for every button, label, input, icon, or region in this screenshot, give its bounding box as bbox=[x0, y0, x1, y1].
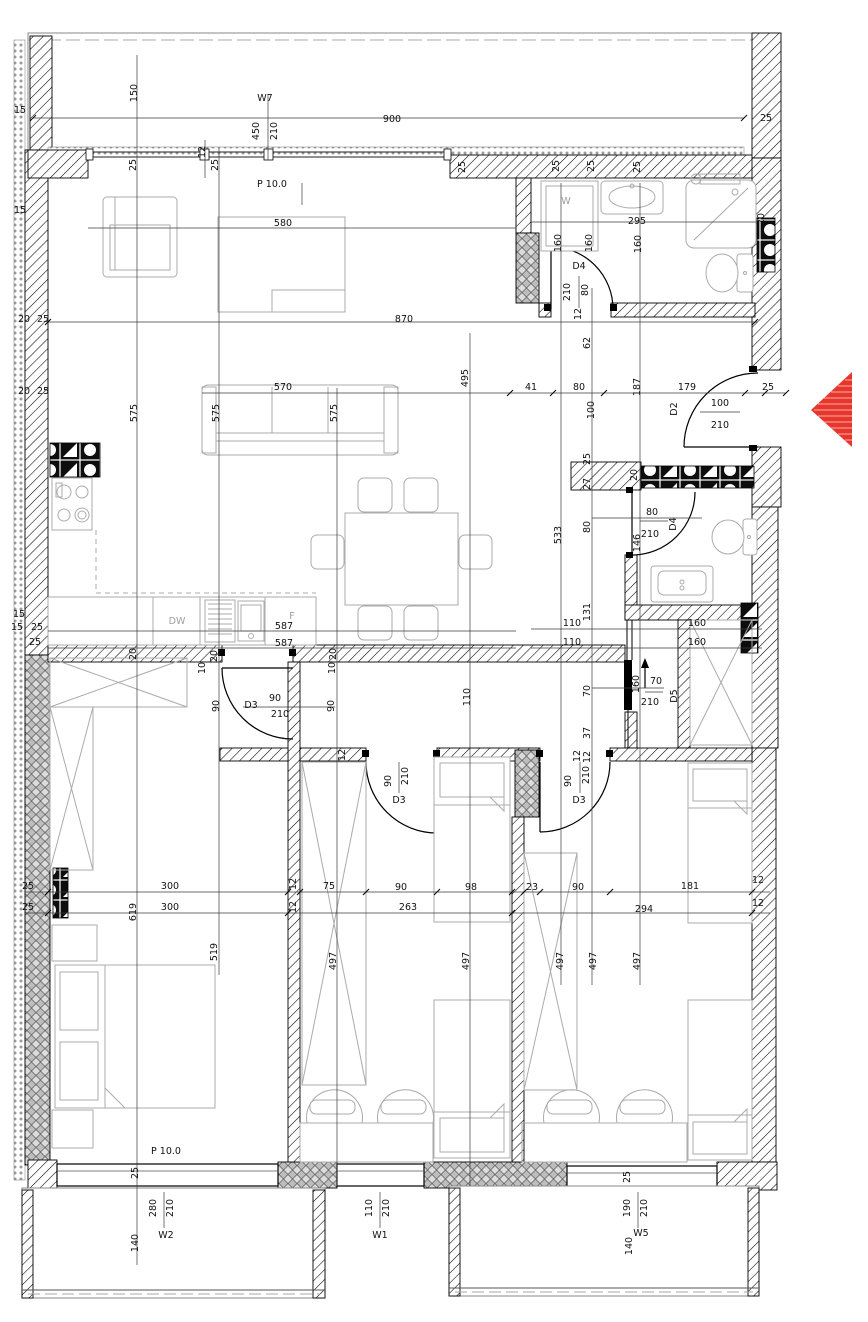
slide-arrow bbox=[641, 658, 649, 668]
desk-middle bbox=[300, 1123, 433, 1162]
door-d3-bedroom-middle bbox=[362, 750, 440, 833]
plan-label: 280 bbox=[148, 1199, 159, 1217]
plan-label: 12 bbox=[572, 750, 583, 762]
window-w2 bbox=[57, 1164, 278, 1186]
plan-label: 210 bbox=[641, 529, 659, 540]
plan-label: 70 bbox=[582, 685, 593, 697]
plan-label: 25 bbox=[37, 386, 49, 397]
plan-label: 181 bbox=[681, 881, 699, 892]
plan-label: 160 bbox=[553, 234, 564, 252]
plan-label: 497 bbox=[555, 952, 566, 970]
plan-label: 294 bbox=[635, 904, 653, 915]
plan-label: 210 bbox=[639, 1199, 650, 1217]
right-wall-bedroom bbox=[752, 748, 776, 1162]
nightstand bbox=[52, 1110, 93, 1148]
door-d3-bedroom-left bbox=[218, 649, 296, 739]
plan-label: 619 bbox=[128, 903, 139, 921]
plan-label: 870 bbox=[395, 314, 413, 325]
plan-label: 12 bbox=[337, 749, 348, 761]
plan-label: 15 bbox=[13, 609, 25, 620]
plan-label: D4 bbox=[668, 517, 679, 530]
plan-label: 75 bbox=[323, 881, 335, 892]
wardrobe-middle bbox=[302, 762, 366, 1085]
plan-label: 12 bbox=[752, 898, 764, 909]
plan-label: 15 bbox=[11, 622, 23, 633]
plan-label: 497 bbox=[328, 952, 339, 970]
plan-label: 90 bbox=[269, 693, 281, 704]
plan-label: 80 bbox=[646, 507, 658, 518]
bed-middle-1 bbox=[434, 757, 510, 922]
plan-label: 20 bbox=[756, 213, 767, 225]
bottom-wall-w1-w5 bbox=[424, 1162, 567, 1188]
plan-label: 62 bbox=[582, 337, 593, 349]
plan-label: 10 bbox=[197, 662, 208, 674]
plan-label: 210 bbox=[271, 709, 289, 720]
bath1-tiles bbox=[757, 218, 775, 272]
plan-label: 300 bbox=[161, 881, 179, 892]
plan-label: 146 bbox=[632, 534, 643, 552]
plan-label: D2 bbox=[669, 402, 680, 415]
plan-label: 575 bbox=[329, 404, 340, 422]
plan-label: D3 bbox=[572, 795, 585, 806]
plan-label: 37 bbox=[582, 727, 593, 739]
chair bbox=[617, 1090, 673, 1123]
plan-label: 495 bbox=[460, 369, 471, 387]
plan-label: 533 bbox=[553, 526, 564, 544]
plan-label: 20 bbox=[209, 650, 220, 662]
plan-label: 570 bbox=[274, 382, 292, 393]
shower bbox=[686, 174, 756, 248]
plan-label: 15 bbox=[14, 105, 26, 116]
balcony-bottom-right bbox=[449, 1186, 759, 1296]
window-w1 bbox=[337, 1164, 424, 1186]
chair bbox=[544, 1090, 600, 1123]
plan-label: DW bbox=[169, 616, 186, 627]
plan-label: 25 bbox=[632, 161, 643, 173]
plan-label: 25 bbox=[128, 159, 139, 171]
bottom-corner-left bbox=[28, 1160, 57, 1188]
desk-right bbox=[522, 1123, 687, 1162]
plan-label: 587 bbox=[275, 638, 293, 649]
plan-label: D4 bbox=[572, 261, 585, 272]
plan-label: 100 bbox=[711, 398, 729, 409]
bedroom-divider-right bbox=[512, 817, 524, 1162]
kitchen-tiles bbox=[50, 443, 100, 477]
plan-label: 210 bbox=[641, 697, 659, 708]
plan-label: 25 bbox=[551, 160, 562, 172]
plan-label: 90 bbox=[326, 700, 337, 712]
dining-table bbox=[311, 478, 492, 640]
plan-label: 110 bbox=[563, 637, 581, 648]
plan-label: 300 bbox=[161, 902, 179, 913]
plan-label: 25 bbox=[762, 382, 774, 393]
door-d4-bath1 bbox=[544, 247, 617, 311]
plan-label: 20 bbox=[328, 648, 339, 660]
plan-label: 140 bbox=[130, 1234, 141, 1252]
plan-label: 25 bbox=[37, 314, 49, 325]
plan-label: 20 bbox=[18, 386, 30, 397]
plan-label: 90 bbox=[572, 882, 584, 893]
bed-middle-2 bbox=[434, 1000, 510, 1158]
plan-label: 160 bbox=[584, 234, 595, 252]
shaft-living-bath bbox=[516, 233, 539, 303]
plan-label: 80 bbox=[580, 284, 591, 296]
plan-label: 160 bbox=[633, 235, 644, 253]
right-wall-entry-stub bbox=[752, 447, 781, 507]
plan-label: 12 bbox=[582, 751, 593, 763]
side-table bbox=[218, 217, 345, 312]
plan-label: 10 bbox=[327, 662, 338, 674]
plan-label: W1 bbox=[372, 1230, 387, 1241]
bath1-sink bbox=[601, 181, 663, 214]
plan-label: 295 bbox=[628, 216, 646, 227]
plan-label: 25 bbox=[586, 160, 597, 172]
bedroom-right bbox=[522, 620, 752, 1162]
plan-label: 25 bbox=[582, 453, 593, 465]
dresser bbox=[52, 925, 97, 961]
wardrobe-tall bbox=[50, 707, 93, 870]
plan-label: 150 bbox=[129, 84, 140, 102]
plan-label: 210 bbox=[581, 766, 592, 784]
bathroom-2 bbox=[651, 519, 757, 602]
plan-label: W7 bbox=[257, 93, 272, 104]
plan-label: 900 bbox=[383, 114, 401, 125]
bath1-bottom-wall bbox=[611, 303, 755, 317]
plan-label: W5 bbox=[633, 1228, 648, 1239]
plan-label: P 10.0 bbox=[151, 1146, 181, 1157]
plan-label: 210 bbox=[381, 1199, 392, 1217]
plan-label: 160 bbox=[688, 618, 706, 629]
plan-label: 497 bbox=[588, 952, 599, 970]
sink-drainer bbox=[205, 600, 235, 642]
entrance-arrow bbox=[811, 372, 852, 447]
floor-plan: 150W7450210900251515251225P 10.025252525… bbox=[0, 0, 868, 1322]
plan-label: 27 bbox=[582, 478, 593, 490]
plan-label: 12 bbox=[752, 875, 764, 886]
plan-label: 12 bbox=[288, 878, 299, 890]
plan-label: 575 bbox=[129, 404, 140, 422]
plan-label: 497 bbox=[461, 952, 472, 970]
plan-label: 580 bbox=[274, 218, 292, 229]
plan-label: 587 bbox=[275, 621, 293, 632]
plan-label: 131 bbox=[582, 603, 593, 621]
plan-label: 90 bbox=[563, 775, 574, 787]
bath2-sink bbox=[651, 566, 713, 602]
plan-label: W bbox=[561, 196, 571, 207]
plan-label: 25 bbox=[760, 113, 772, 124]
plan-label: 80 bbox=[573, 382, 585, 393]
plan-label: 12 bbox=[288, 901, 299, 913]
plan-label: 90 bbox=[395, 882, 407, 893]
plan-label: 210 bbox=[165, 1199, 176, 1217]
stove bbox=[52, 478, 92, 530]
plan-label: 210 bbox=[400, 767, 411, 785]
plan-label: 100 bbox=[586, 401, 597, 419]
shaft-bedrooms bbox=[515, 750, 539, 817]
bed-right-2 bbox=[688, 1000, 752, 1160]
wardrobe-top bbox=[50, 658, 187, 707]
plan-label: 110 bbox=[364, 1199, 375, 1217]
plan-label: 25 bbox=[29, 637, 41, 648]
plan-label: 210 bbox=[711, 420, 729, 431]
plan-label: 263 bbox=[399, 902, 417, 913]
bedrooms-top-wall bbox=[610, 748, 752, 761]
top-left-corner bbox=[28, 150, 88, 178]
bottom-wall-w2-w1 bbox=[278, 1162, 337, 1188]
plan-label: 187 bbox=[632, 378, 643, 396]
armchair bbox=[103, 197, 177, 277]
plan-label: D5 bbox=[669, 689, 680, 702]
chair bbox=[307, 1090, 363, 1123]
plan-label: 110 bbox=[462, 688, 473, 706]
plan-label: 15 bbox=[14, 205, 26, 216]
plan-label: P 10.0 bbox=[257, 179, 287, 190]
bath2-tiles bbox=[741, 603, 758, 653]
plan-label: 41 bbox=[525, 382, 537, 393]
plan-label: 20 bbox=[128, 648, 139, 660]
bed-right-1 bbox=[688, 763, 752, 923]
plan-label: 210 bbox=[562, 283, 573, 301]
chair bbox=[378, 1090, 434, 1123]
plan-label: 90 bbox=[383, 775, 394, 787]
bed-main bbox=[55, 965, 215, 1108]
plan-label: 12 bbox=[573, 308, 584, 320]
plan-label: 160 bbox=[631, 675, 642, 693]
balcony-top-left-wall bbox=[30, 36, 52, 150]
plan-label: 70 bbox=[650, 676, 662, 687]
plan-label: 25 bbox=[210, 159, 221, 171]
plan-label: D3 bbox=[392, 795, 405, 806]
plan-label: 190 bbox=[622, 1199, 633, 1217]
left-wall-upper bbox=[25, 150, 48, 655]
top-wall-bath bbox=[450, 155, 755, 178]
plan-label: 25 bbox=[622, 1171, 633, 1183]
plan-label: 110 bbox=[563, 618, 581, 629]
plan-label: 98 bbox=[465, 882, 477, 893]
plan-label: 25 bbox=[31, 622, 43, 633]
plan-label: 160 bbox=[688, 637, 706, 648]
plan-label: 450 bbox=[251, 122, 262, 140]
right-wall-balcony bbox=[752, 33, 781, 158]
sofa bbox=[202, 385, 398, 455]
toilet-2 bbox=[712, 519, 757, 555]
plan-label: 25 bbox=[22, 881, 34, 892]
plan-label: 575 bbox=[211, 404, 222, 422]
plan-label: 25 bbox=[457, 161, 468, 173]
entry-closet-tiles bbox=[641, 466, 754, 488]
bedroom-left-tiles bbox=[53, 868, 68, 918]
plan-label: 519 bbox=[209, 943, 220, 961]
plan-label: 90 bbox=[211, 700, 222, 712]
plan-label: 20 bbox=[629, 469, 640, 481]
plan-label: 140 bbox=[624, 1237, 635, 1255]
toilet-1 bbox=[706, 254, 753, 292]
plan-label: 80 bbox=[582, 521, 593, 533]
plan-label: 20 bbox=[18, 314, 30, 325]
floor-plan-svg: 150W7450210900251515251225P 10.025252525… bbox=[0, 0, 868, 1322]
bathroom-1 bbox=[541, 174, 756, 292]
plan-label: W2 bbox=[158, 1230, 173, 1241]
plan-label: D3 bbox=[244, 700, 257, 711]
plan-label: 179 bbox=[678, 382, 696, 393]
plan-label: 25 bbox=[130, 1167, 141, 1179]
plan-label: 210 bbox=[269, 122, 280, 140]
kitchen-sink bbox=[238, 601, 264, 641]
plan-label: 23 bbox=[526, 882, 538, 893]
plan-label: 25 bbox=[22, 902, 34, 913]
plan-label: 497 bbox=[632, 952, 643, 970]
plan-label: 12 bbox=[197, 146, 208, 158]
